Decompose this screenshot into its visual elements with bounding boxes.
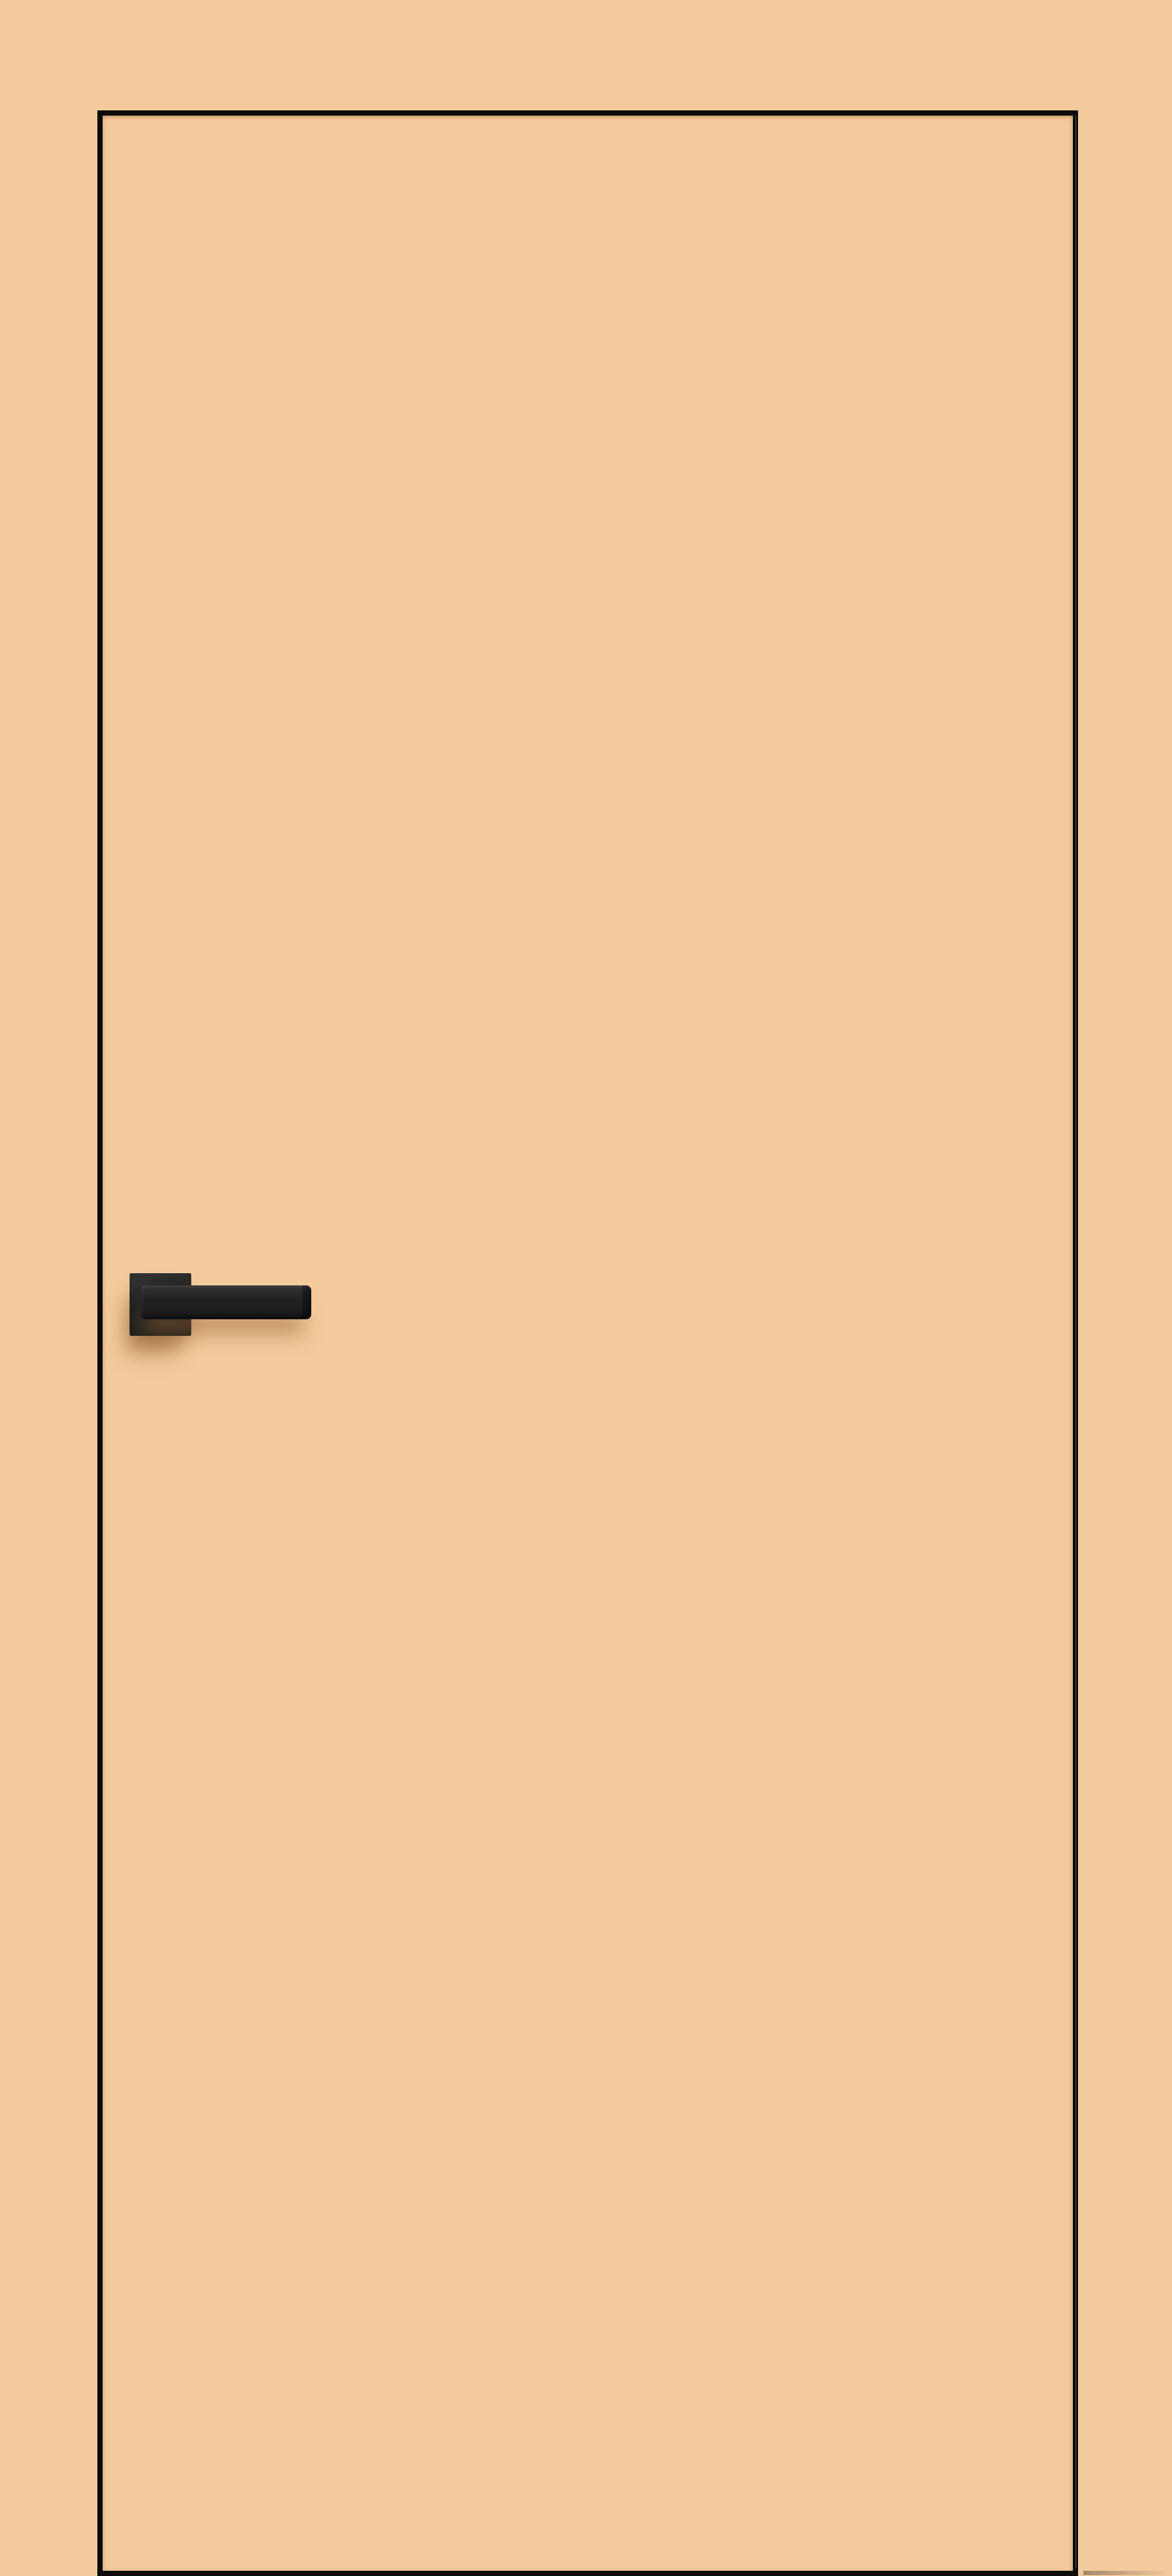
- door-product-image: [0, 0, 1172, 2576]
- door-right-edge-seam: [1075, 116, 1076, 2568]
- floor-shadow: [1083, 2571, 1170, 2575]
- handle-lever: [141, 1285, 311, 1319]
- door-leaf: [97, 110, 1078, 2576]
- handle-lever-end-cap: [303, 1285, 311, 1319]
